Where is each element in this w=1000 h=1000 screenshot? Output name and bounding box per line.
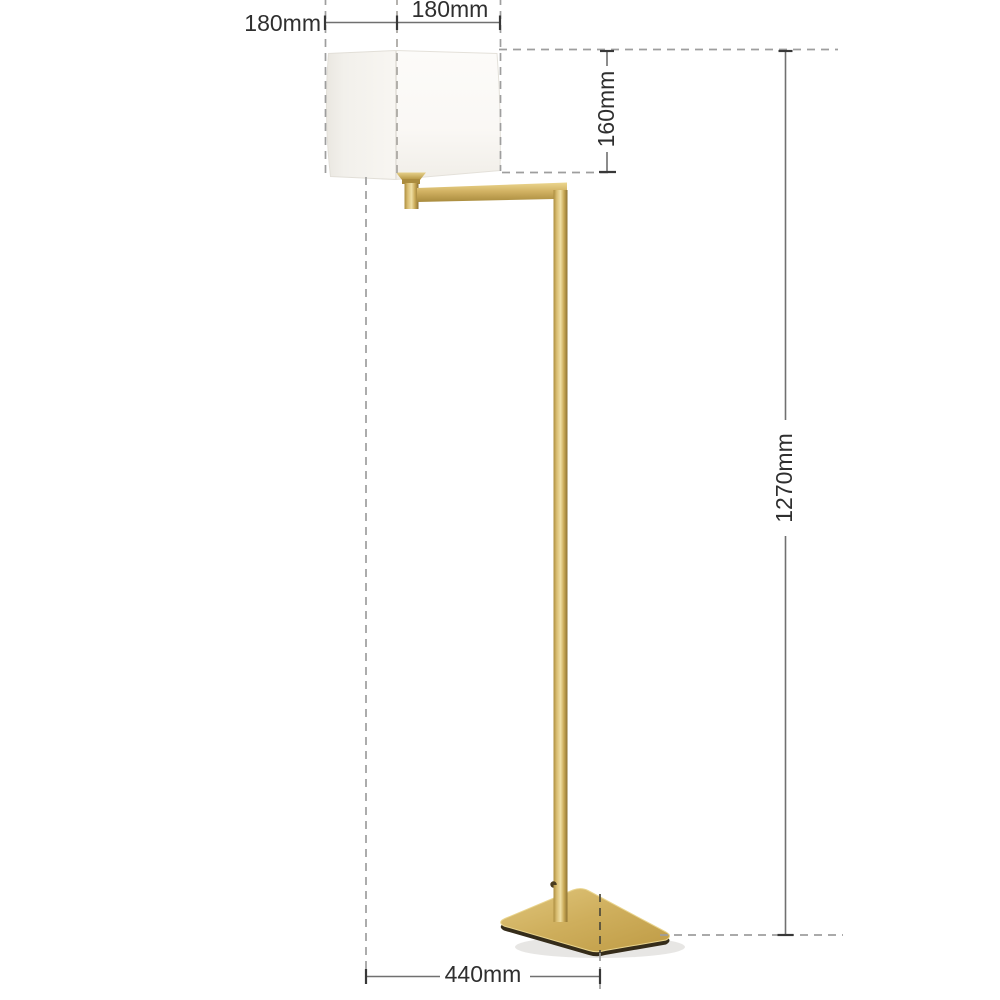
lamp-dimension-drawing (0, 0, 1000, 1000)
dimension-label-base-width: 440mm (423, 961, 543, 987)
dimension-label-shade-height: 160mm (593, 49, 619, 169)
holder-stem (405, 183, 419, 209)
product-dimension-diagram: 180mm 180mm 160mm 1270mm 440mm (0, 0, 1000, 1000)
lamp-shade-left-face (326, 51, 396, 180)
lamp-shade-front-face (396, 51, 500, 180)
lamp-pole (554, 190, 568, 923)
dimension-label-total-height: 1270mm (771, 408, 797, 548)
pole-base-joint (554, 885, 568, 922)
lamp-shade (326, 51, 500, 180)
lamp-base (501, 885, 685, 958)
lamp-swing-arm (417, 183, 567, 203)
dimension-label-shade-width-left: 180mm (221, 10, 321, 36)
dimension-label-shade-width-right: 180mm (390, 0, 510, 22)
